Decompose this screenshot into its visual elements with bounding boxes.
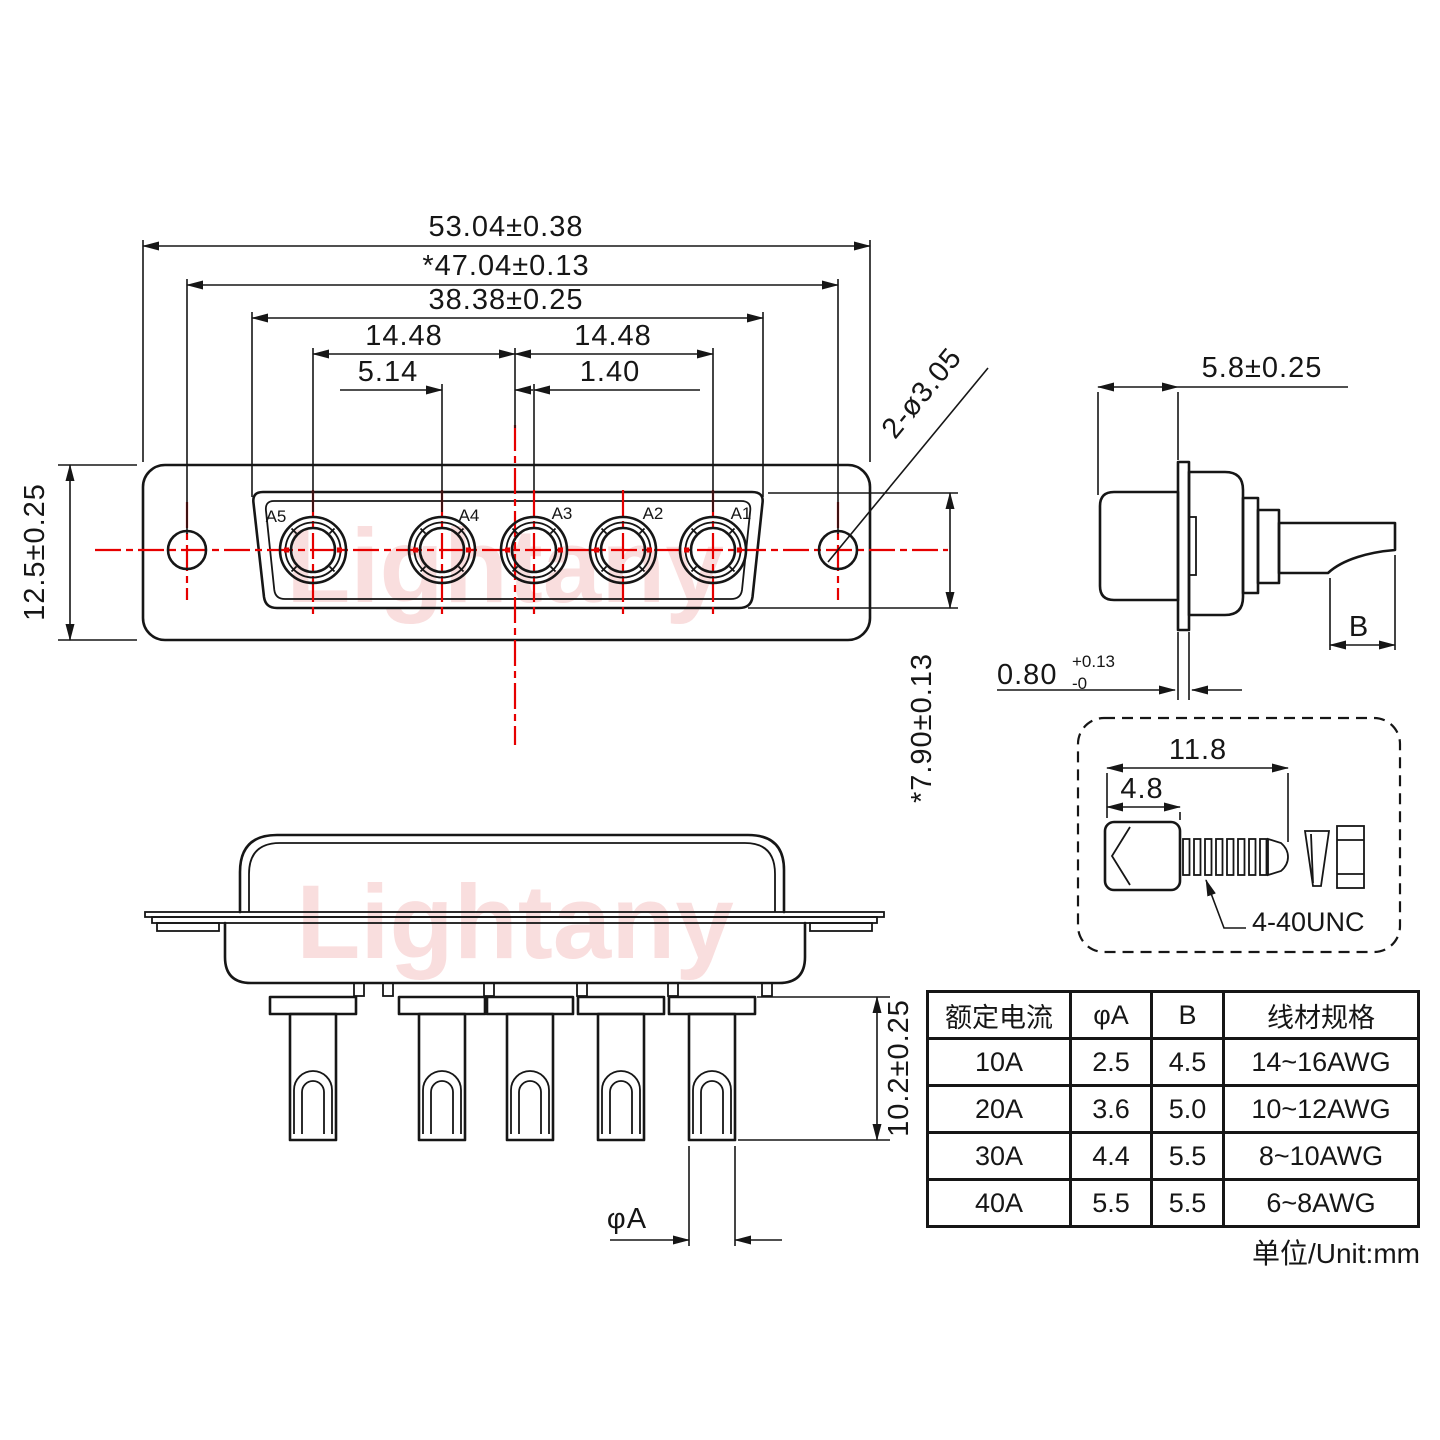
dim-shell-height: *7.90±0.13 (906, 653, 938, 803)
contact-label-a2: A2 (643, 504, 664, 523)
connector-datasheet-drawing: Lightany Lightany A5 A4 A3 A2 A1 (0, 0, 1440, 1440)
header-phi-a: φA (1071, 992, 1152, 1039)
table-cell: 30A (928, 1133, 1071, 1180)
dim-pin-length: 10.2±0.25 (883, 999, 915, 1137)
dim-screw-overall: 11.8 (1169, 734, 1227, 766)
contact-label-a3: A3 (552, 504, 573, 523)
table-row: 40A 5.5 5.5 6~8AWG (928, 1180, 1419, 1227)
side-view: 5.8±0.25 0.80 +0.13 -0 B (997, 352, 1395, 700)
header-b: B (1152, 992, 1224, 1039)
screw-thread-spec: 4-40UNC (1252, 907, 1365, 937)
contact-label-a5: A5 (266, 507, 287, 526)
table-cell: 10A (928, 1039, 1071, 1086)
table-cell: 3.6 (1071, 1086, 1152, 1133)
table-row: 20A 3.6 5.0 10~12AWG (928, 1086, 1419, 1133)
dim-a4-offset: 5.14 (358, 356, 418, 388)
dim-pin-dia: φA (607, 1203, 647, 1235)
table-row: 10A 2.5 4.5 14~16AWG (928, 1039, 1419, 1086)
dim-a3-offset: 1.40 (580, 356, 640, 388)
header-rated-current: 额定电流 (928, 992, 1071, 1039)
header-wire-spec: 线材规格 (1224, 992, 1419, 1039)
table-header-row: 额定电流 φA B 线材规格 (928, 992, 1419, 1039)
dim-insert-depth: 5.8±0.25 (1202, 352, 1323, 384)
table-cell: 14~16AWG (1224, 1039, 1419, 1086)
dim-body-height: 12.5±0.25 (19, 483, 51, 621)
table-cell: 2.5 (1071, 1039, 1152, 1086)
table-cell: 40A (928, 1180, 1071, 1227)
spec-table: 额定电流 φA B 线材规格 10A 2.5 4.5 14~16AWG 20A … (926, 990, 1420, 1228)
screw-detail: 11.8 4.8 4-40UNC (1078, 718, 1400, 952)
contact-label-a4: A4 (459, 506, 480, 525)
table-cell: 4.5 (1152, 1039, 1224, 1086)
table-cell: 5.5 (1071, 1180, 1152, 1227)
table-cell: 5.0 (1152, 1086, 1224, 1133)
dim-shell-width: 38.38±0.25 (429, 284, 584, 316)
dim-total-width: 53.04±0.38 (429, 211, 584, 243)
dim-mount-holes: 2-ø3.05 (876, 342, 969, 445)
dim-flange-thickness: 0.80 (997, 659, 1057, 691)
table-cell: 20A (928, 1086, 1071, 1133)
dim-pitch-right: 14.48 (574, 320, 652, 352)
table-cell: 8~10AWG (1224, 1133, 1419, 1180)
table-cell: 4.4 (1071, 1133, 1152, 1180)
table-cell: 5.5 (1152, 1180, 1224, 1227)
dim-mount-width: *47.04±0.13 (422, 250, 589, 282)
table-cell: 5.5 (1152, 1133, 1224, 1180)
table-cell: 10~12AWG (1224, 1086, 1419, 1133)
unit-note: 单位/Unit:mm (1180, 1232, 1420, 1272)
dim-pitch-left: 14.48 (365, 320, 443, 352)
dim-screw-head: 4.8 (1120, 773, 1163, 805)
table-row: 30A 4.4 5.5 8~10AWG (928, 1133, 1419, 1180)
dim-flange-tol-plus: +0.13 (1072, 652, 1115, 671)
dim-barrel-b: B (1349, 611, 1369, 643)
contact-label-a1: A1 (731, 504, 752, 523)
table-cell: 6~8AWG (1224, 1180, 1419, 1227)
dim-flange-tol-minus: -0 (1072, 674, 1087, 693)
